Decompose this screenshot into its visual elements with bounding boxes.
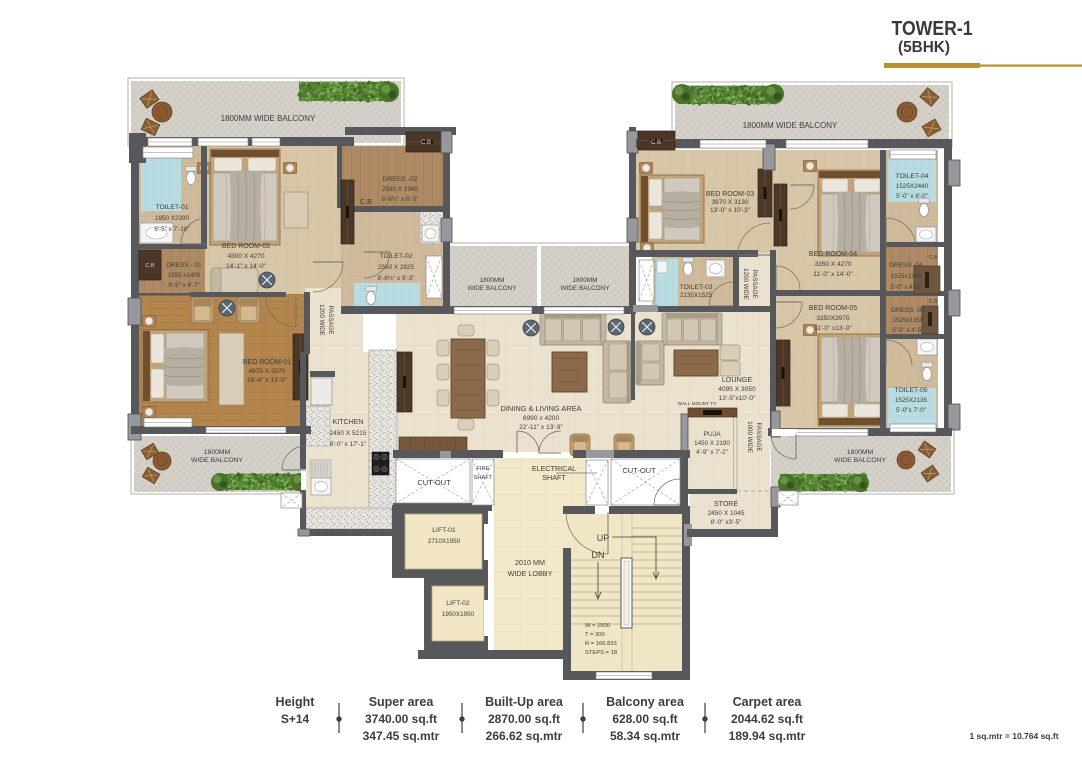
svg-text:4300 X 4270: 4300 X 4270 <box>228 253 265 260</box>
svg-text:TOILET-02: TOILET-02 <box>379 253 412 260</box>
svg-text:1000 WIDE: 1000 WIDE <box>746 421 753 453</box>
svg-text:T = 300: T = 300 <box>585 632 605 638</box>
svg-text:1800MM WIDE BALCONY: 1800MM WIDE BALCONY <box>743 121 838 130</box>
svg-text:TOWER-1: TOWER-1 <box>892 18 973 40</box>
svg-text:1800MM: 1800MM <box>573 277 598 284</box>
svg-text:WIDE BALCONY: WIDE BALCONY <box>467 285 517 292</box>
svg-text:TOILET-03: TOILET-03 <box>679 284 712 291</box>
svg-text:1800MM: 1800MM <box>480 277 505 284</box>
svg-text:DRESS -04: DRESS -04 <box>889 262 923 269</box>
svg-text:2710X1950: 2710X1950 <box>428 538 461 545</box>
svg-text:1800MM: 1800MM <box>847 449 874 456</box>
svg-text:5'-0" x 4'-5": 5'-0" x 4'-5" <box>890 284 921 291</box>
svg-text:3350X3970: 3350X3970 <box>816 315 850 322</box>
svg-text:C.B: C.B <box>929 255 938 261</box>
svg-text:C.B: C.B <box>929 299 938 305</box>
svg-text:8'-0" x 17'-1": 8'-0" x 17'-1" <box>330 441 367 448</box>
svg-text:628.00 sq.ft: 628.00 sq.ft <box>612 712 677 726</box>
svg-text:TOILET-05: TOILET-05 <box>894 387 927 394</box>
svg-text:Balcony area: Balcony area <box>606 695 685 709</box>
svg-text:TOILET-04: TOILET-04 <box>895 173 928 180</box>
svg-text:4095 X 3050: 4095 X 3050 <box>718 386 756 393</box>
svg-text:1950X1950: 1950X1950 <box>442 611 475 618</box>
svg-text:14'-1" x 14'-0": 14'-1" x 14'-0" <box>226 263 267 270</box>
svg-text:C.B: C.B <box>145 263 155 269</box>
svg-text:1525X2135: 1525X2135 <box>895 397 928 404</box>
svg-text:LOUNGE: LOUNGE <box>722 375 753 384</box>
svg-text:1200 WIDE: 1200 WIDE <box>742 268 749 300</box>
svg-text:1525X2440: 1525X2440 <box>896 183 929 190</box>
svg-text:S+14: S+14 <box>281 712 310 726</box>
svg-text:3740.00 sq.ft: 3740.00 sq.ft <box>365 712 437 726</box>
svg-text:1 sq.mtr = 10.764 sq.ft: 1 sq.mtr = 10.764 sq.ft <box>969 731 1058 741</box>
svg-text:BED ROOM-05: BED ROOM-05 <box>809 305 857 312</box>
svg-text:LIFT-02: LIFT-02 <box>446 600 470 607</box>
svg-text:11'-0" x 14'-0": 11'-0" x 14'-0" <box>813 271 853 278</box>
svg-text:KITCHEN: KITCHEN <box>333 419 364 426</box>
svg-text:6'-5" x 7'-10": 6'-5" x 7'-10" <box>154 226 189 233</box>
svg-text:DINING & LIVING AREA: DINING & LIVING AREA <box>501 404 582 413</box>
svg-text:BED ROOM-02: BED ROOM-02 <box>222 243 270 250</box>
svg-text:STEPS = 18: STEPS = 18 <box>585 650 617 656</box>
svg-text:16'-4" x 13'-0": 16'-4" x 13'-0" <box>247 377 288 384</box>
svg-text:CUT-OUT: CUT-OUT <box>622 466 656 475</box>
svg-text:2560 X 2825: 2560 X 2825 <box>378 264 414 271</box>
svg-text:ELECTRICAL: ELECTRICAL <box>532 464 576 473</box>
svg-text:PASSAGE: PASSAGE <box>751 269 758 298</box>
svg-text:Super area: Super area <box>369 695 435 709</box>
svg-text:DRESS -02: DRESS -02 <box>382 176 417 183</box>
svg-text:WIDE BALCONY: WIDE BALCONY <box>560 285 610 292</box>
svg-text:1200 WIDE: 1200 WIDE <box>318 304 325 336</box>
svg-text:347.45 sq.mtr: 347.45 sq.mtr <box>363 729 440 743</box>
svg-text:8'-0" x3'-5": 8'-0" x3'-5" <box>711 519 743 526</box>
svg-text:58.34 sq.mtr: 58.34 sq.mtr <box>610 729 680 743</box>
svg-text:5'-0" x 8'-0": 5'-0" x 8'-0" <box>896 193 928 200</box>
svg-text:WALL MOUNT TV: WALL MOUNT TV <box>678 401 718 407</box>
svg-text:2870.00 sq.ft: 2870.00 sq.ft <box>488 712 560 726</box>
svg-text:1950 X2390: 1950 X2390 <box>155 215 189 222</box>
svg-text:Height: Height <box>276 695 316 709</box>
svg-text:WIDE LOBBY: WIDE LOBBY <box>508 569 553 578</box>
svg-text:1800MM: 1800MM <box>204 449 231 456</box>
svg-text:6990 x 4200: 6990 x 4200 <box>523 415 560 422</box>
svg-text:1525x1350: 1525x1350 <box>893 317 924 324</box>
svg-text:BED ROOM-04: BED ROOM-04 <box>809 251 857 258</box>
svg-text:5'-0"x 7'-0": 5'-0"x 7'-0" <box>896 407 926 414</box>
svg-text:2135X1525: 2135X1525 <box>680 292 713 299</box>
svg-text:2580 X 1965: 2580 X 1965 <box>382 186 418 193</box>
svg-text:Built-Up area: Built-Up area <box>485 695 564 709</box>
svg-text:WIDE BALCONY: WIDE BALCONY <box>191 457 244 464</box>
svg-text:C.B: C.B <box>421 140 431 146</box>
svg-text:SHAFT: SHAFT <box>473 475 492 481</box>
svg-text:1950 x1400: 1950 x1400 <box>168 272 201 279</box>
svg-text:3970 X 3130: 3970 X 3130 <box>712 199 749 206</box>
svg-text:3350 X 4270: 3350 X 4270 <box>815 261 852 268</box>
svg-text:TOILET-01: TOILET-01 <box>155 204 188 211</box>
svg-text:11'-0" x13'-0": 11'-0" x13'-0" <box>814 325 852 332</box>
svg-text:Carpet area: Carpet area <box>733 695 803 709</box>
svg-text:LIFT-01: LIFT-01 <box>432 527 456 534</box>
svg-text:13'-5"x10'-0": 13'-5"x10'-0" <box>719 395 757 402</box>
svg-text:R = 166.833: R = 166.833 <box>585 641 617 647</box>
svg-text:1525x1350: 1525x1350 <box>891 273 922 280</box>
svg-text:266.62 sq.mtr: 266.62 sq.mtr <box>486 729 563 743</box>
svg-text:DRESS - 01: DRESS - 01 <box>166 262 202 269</box>
svg-text:WIDE BALCONY: WIDE BALCONY <box>834 457 887 464</box>
svg-text:2010 MM: 2010 MM <box>515 558 545 567</box>
svg-text:22'-11" x 13'-9": 22'-11" x 13'-9" <box>519 424 563 431</box>
svg-text:C,B: C,B <box>360 199 372 206</box>
svg-text:6'-5" x 4'-7": 6'-5" x 4'-7" <box>168 282 199 289</box>
svg-text:1800MM WIDE BALCONY: 1800MM WIDE BALCONY <box>221 114 316 123</box>
svg-text:5'-0" x 4'-5": 5'-0" x 4'-5" <box>892 327 923 334</box>
svg-text:8'-6½" x 6'-5": 8'-6½" x 6'-5" <box>382 195 419 203</box>
svg-text:BED ROOM-01: BED ROOM-01 <box>243 359 291 366</box>
svg-text:DRESS -05: DRESS -05 <box>891 307 925 314</box>
svg-text:SHAFT: SHAFT <box>542 473 566 482</box>
svg-text:2450 X 5215: 2450 X 5215 <box>330 430 367 437</box>
svg-text:8'-6½" x 9'-3": 8'-6½" x 9'-3" <box>378 274 415 282</box>
svg-text:2450 X 1045: 2450 X 1045 <box>708 510 745 517</box>
svg-text:FIRE: FIRE <box>476 466 489 472</box>
svg-text:13'-0" x 10'-3": 13'-0" x 10'-3" <box>710 207 751 214</box>
svg-text:2044.62 sq.ft: 2044.62 sq.ft <box>731 712 803 726</box>
svg-text:W = 1500: W = 1500 <box>585 623 610 629</box>
svg-text:1450 X 2190: 1450 X 2190 <box>694 440 730 447</box>
svg-text:(5BHK): (5BHK) <box>898 39 950 56</box>
svg-text:STORE: STORE <box>714 501 738 508</box>
svg-text:C B: C B <box>651 140 661 146</box>
svg-text:189.94 sq.mtr: 189.94 sq.mtr <box>729 729 806 743</box>
svg-text:4975 X 3970: 4975 X 3970 <box>249 368 286 375</box>
svg-text:DN: DN <box>592 550 605 560</box>
svg-text:PASSAGE: PASSAGE <box>755 422 762 451</box>
svg-text:4'-9" x 7'-2": 4'-9" x 7'-2" <box>696 449 728 456</box>
svg-text:CUT-OUT: CUT-OUT <box>417 478 451 487</box>
svg-text:PUJA: PUJA <box>703 431 721 438</box>
svg-text:BED ROOM-03: BED ROOM-03 <box>706 191 754 198</box>
svg-text:PASSAGE: PASSAGE <box>327 305 334 334</box>
svg-text:UP: UP <box>597 533 610 543</box>
